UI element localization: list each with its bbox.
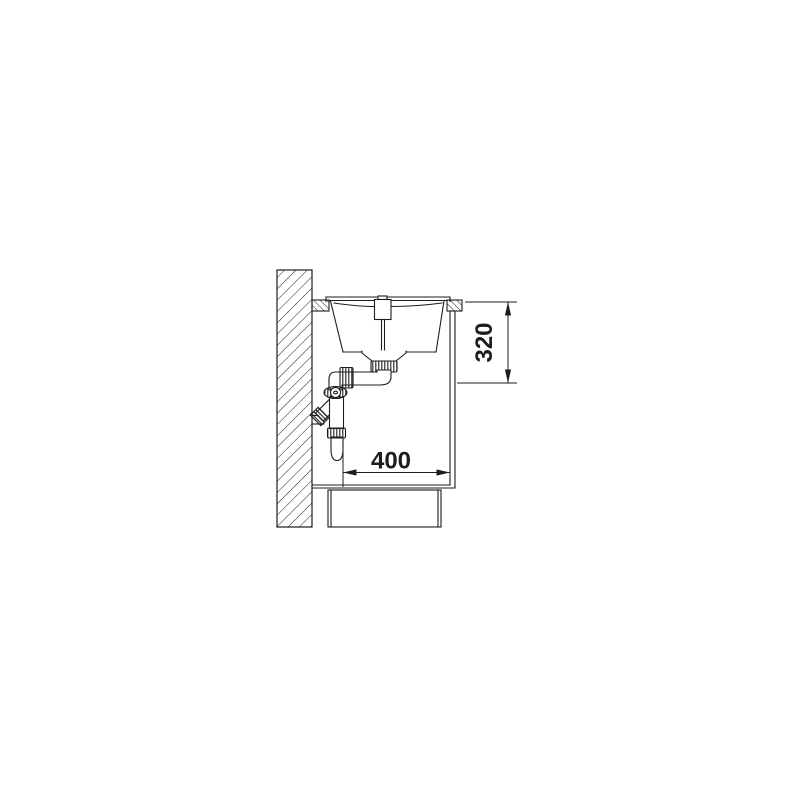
tailpipe-elbow-right [352, 370, 391, 385]
dim-arrow-down-icon [505, 370, 511, 384]
plinth [328, 490, 441, 527]
control-rod [382, 320, 385, 352]
dimension-vertical-label: 320 [471, 322, 498, 362]
dim-arrow-up-icon [505, 302, 511, 316]
drain-funnel [362, 351, 406, 362]
wall-section [277, 270, 312, 527]
trap-cup [331, 437, 343, 461]
dimension-horizontal-label: 400 [371, 448, 411, 475]
sink-inner-edge-left [334, 303, 374, 307]
technical-drawing-canvas: 320 400 [0, 0, 800, 800]
trap-union-center [331, 388, 341, 398]
dimension-horizontal: 400 [343, 448, 450, 488]
worktop-right-section [447, 300, 462, 311]
pipe-coupling-nut [340, 368, 353, 389]
basin-right-wall [436, 301, 444, 352]
dim-arrow-left-icon [343, 469, 357, 475]
drain-outlet-assembly [362, 351, 406, 373]
plinth-outline [328, 490, 441, 527]
sink-section-drawing: 320 400 [0, 0, 800, 800]
sink-inner-edge-right [392, 303, 442, 307]
drain-remote-control [375, 296, 392, 358]
wall-hatch [277, 270, 312, 527]
dimension-vertical: 320 [457, 302, 517, 383]
trap-tube [330, 397, 344, 429]
trap-lower-nut [328, 428, 346, 438]
basin-left-wall [331, 301, 344, 352]
control-knob-body [375, 300, 392, 320]
dim-arrow-right-icon [437, 469, 451, 475]
